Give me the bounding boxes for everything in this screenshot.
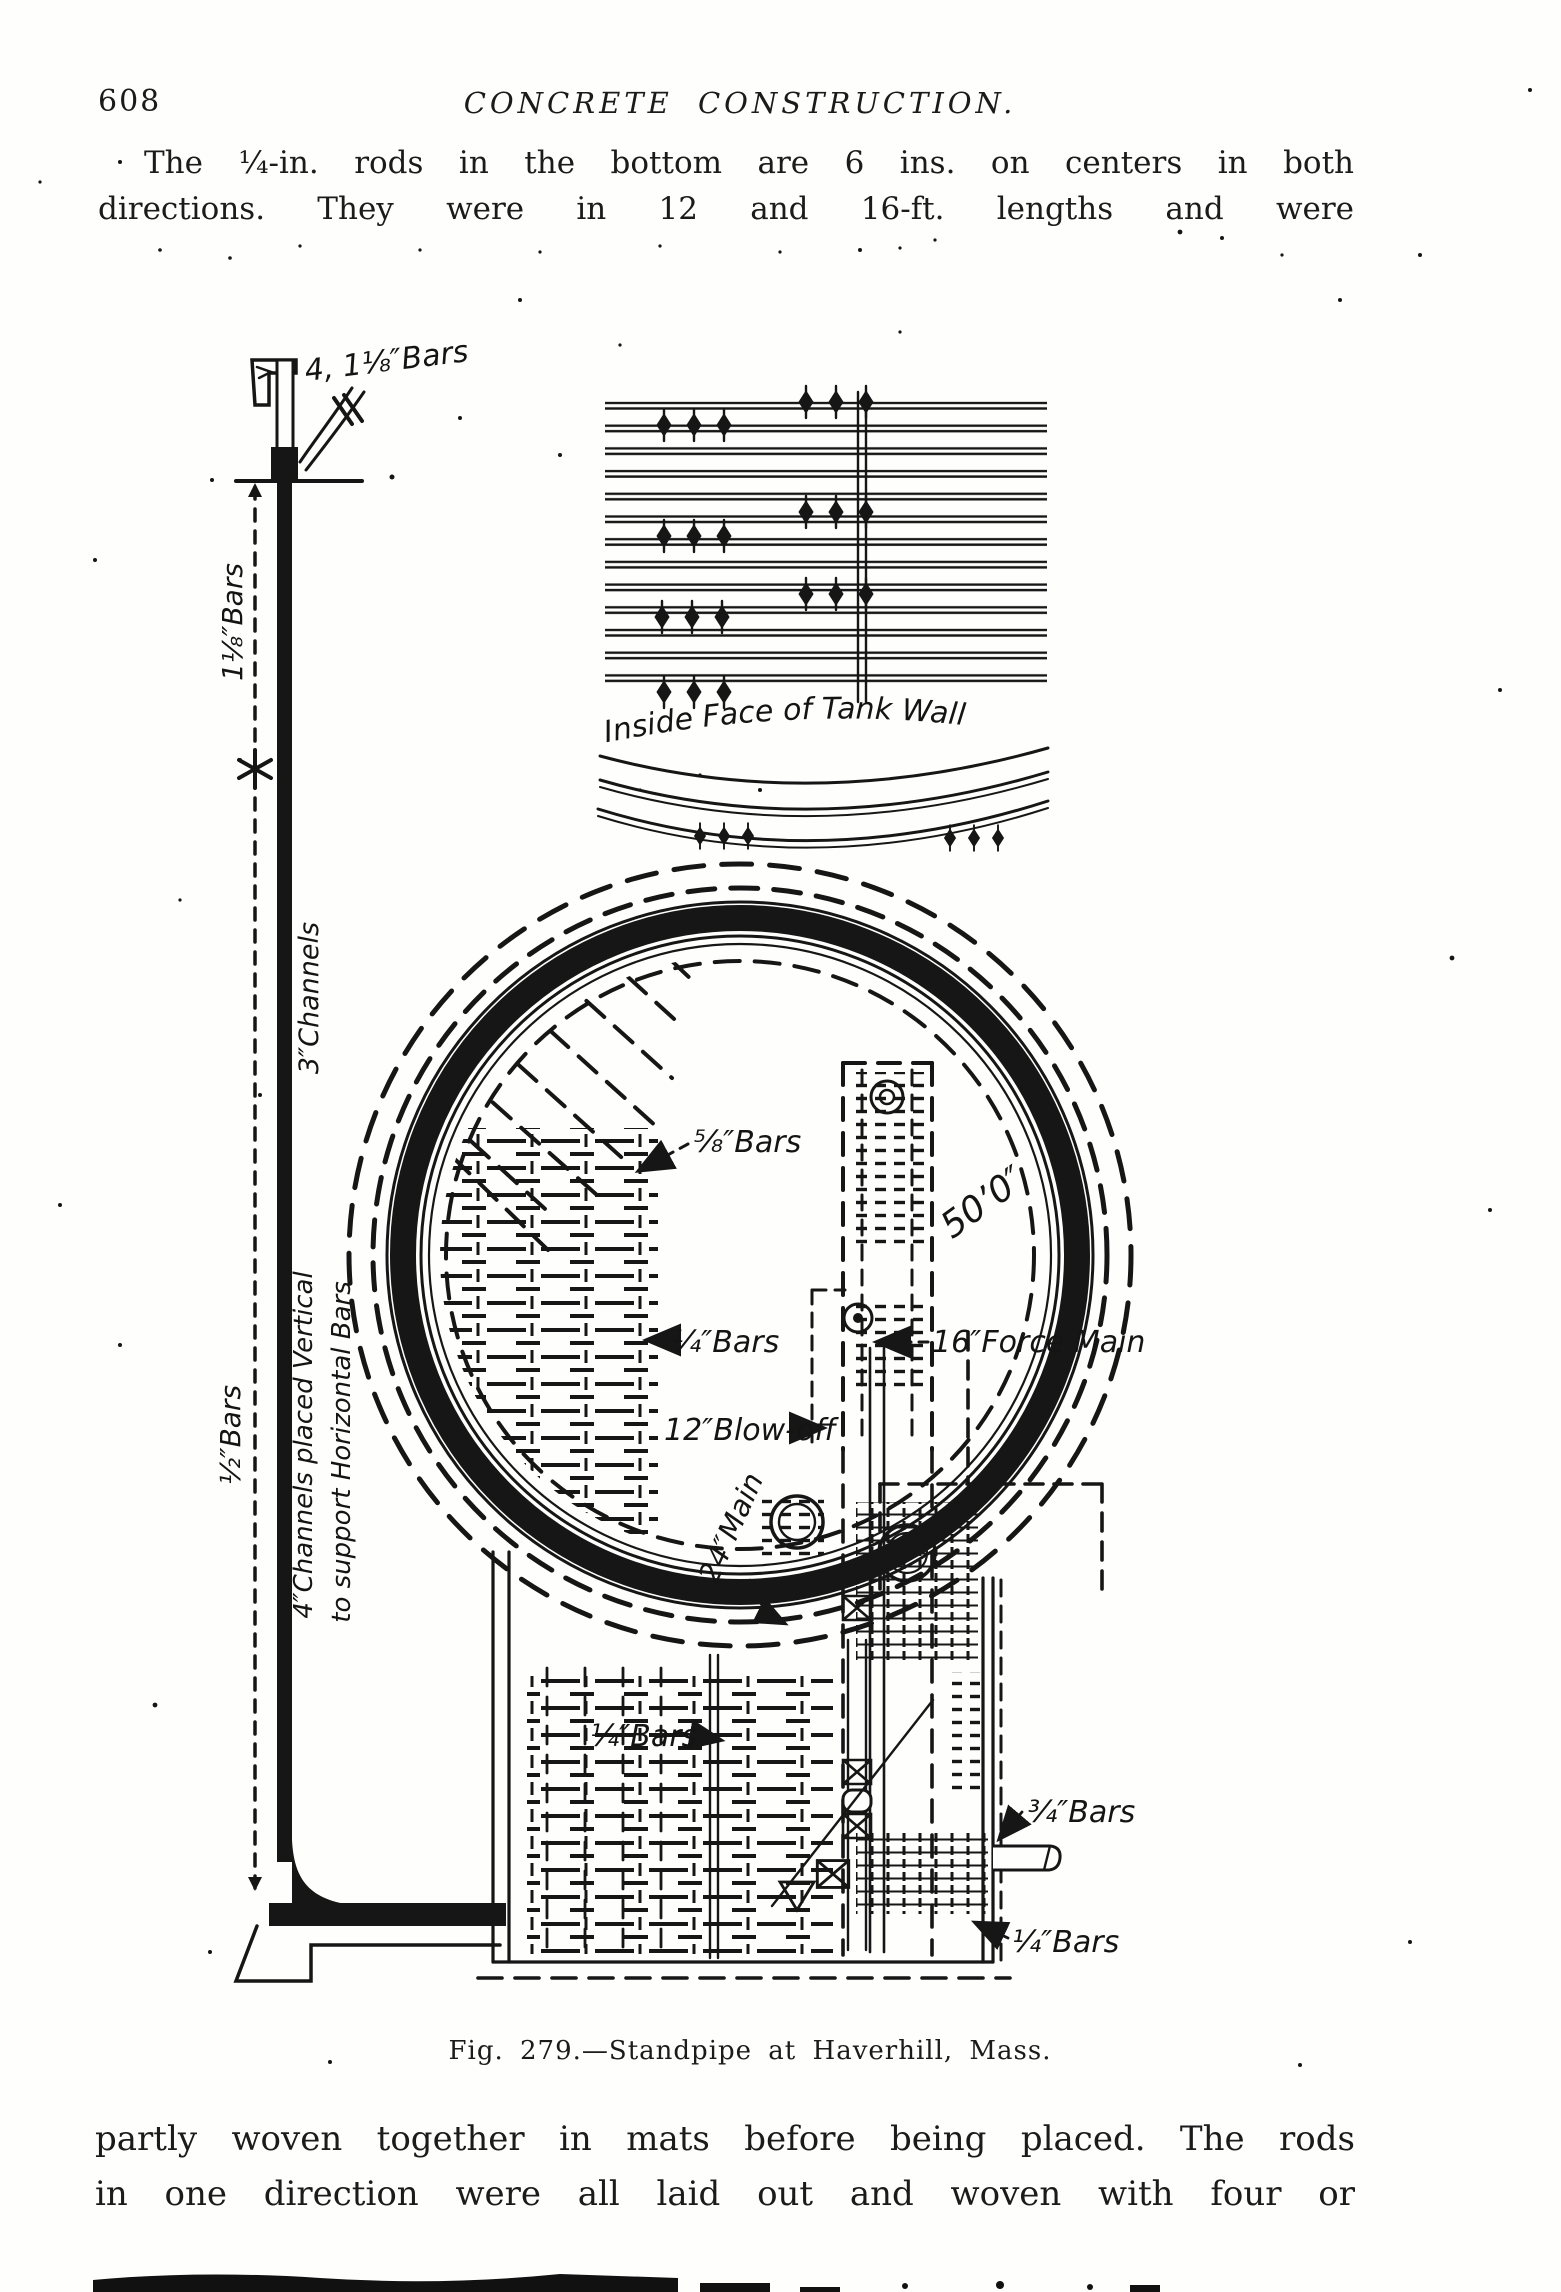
figure-caption: Fig. 279.—Standpipe at Haverhill, Mass. [350,2036,1150,2066]
paragraph-bottom-line2: in one direction were all laid out and w… [95,2167,1355,2222]
horizontal-bars-band [605,398,1047,694]
paragraph-bottom: partly woven together in mats before bei… [95,2112,1355,2222]
standpipe-collar [271,447,298,479]
standpipe-base [269,1903,506,1926]
woven-mat-bottom-right [856,1832,988,1914]
book-page: 608 CONCRETE CONSTRUCTION. The ¼-in. rod… [0,0,1561,2292]
label-4in-channels-line1: 4″Channels placed Vertical [289,1271,319,1619]
label-bars-upper-dim: 1⅛″Bars [216,563,249,681]
tank-wall-detail [598,386,1048,851]
label-14-bars-bottom: ¼″Bars [1012,1925,1119,1960]
label-14-bars-pit: ¼″Bars [590,1719,697,1754]
label-force-main: 16″Force Main [932,1325,1145,1360]
paragraph-bottom-line1: partly woven together in mats before bei… [95,2112,1355,2167]
label-3in-channels: 3″Channels [294,922,325,1074]
label-bars-lower-dim: ½″Bars [214,1385,247,1485]
foundation-outline [236,1926,500,1981]
label-inside-face: Inside Face of Tank Wall [601,691,968,750]
standpipe-shaft [277,477,292,1862]
label-58-bars: ⅝″Bars [694,1125,801,1160]
label-4in-channels-line2: to support Horizontal Bars [327,1281,357,1622]
label-top-bars: 4, 1⅛″Bars [303,334,471,389]
label-diameter: 50’0″ [933,1158,1033,1247]
label-14-bars-mid: ¼″Bars [672,1325,779,1360]
pit-bar-mat [527,1676,833,1954]
figure-279-standpipe-drawing: 4, 1⅛″Bars 1⅛″Bars 3″Channels 4″Channels… [0,0,1561,2292]
label-24-main: 24″Main [692,1468,771,1589]
scan-smudge-bottom [93,2274,1160,2292]
label-blow-off: 12″Blow-off [664,1413,839,1448]
label-34-bars: ¾″Bars [1028,1795,1135,1830]
